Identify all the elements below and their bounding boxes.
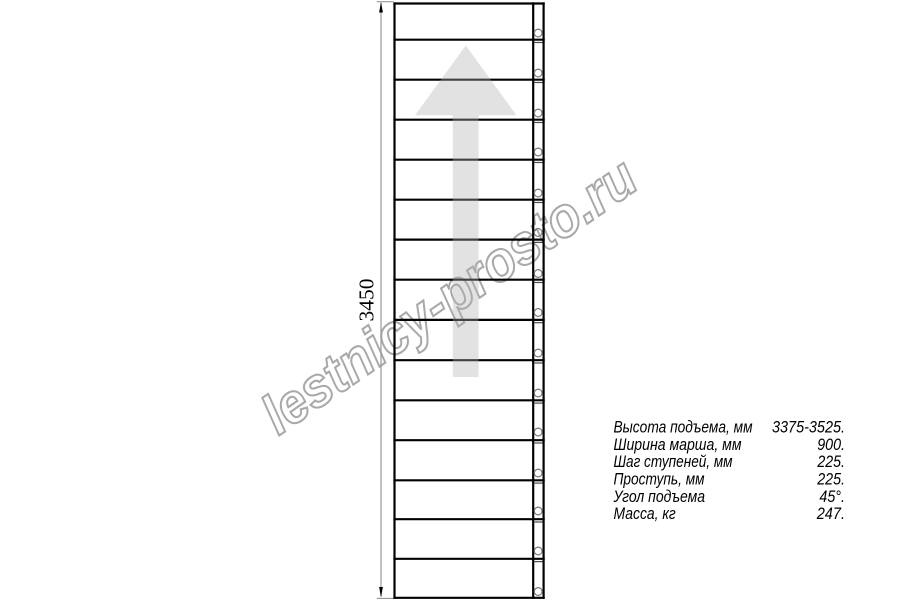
svg-text:Ширина марша, мм: Ширина марша, мм: [614, 435, 742, 454]
svg-text:Угол подъема: Угол подъема: [613, 487, 705, 506]
svg-text:3375-3525.: 3375-3525.: [772, 418, 845, 437]
svg-text:Проступь, мм: Проступь, мм: [614, 470, 705, 489]
svg-text:45°.: 45°.: [819, 487, 845, 506]
svg-text:900.: 900.: [817, 435, 845, 454]
svg-text:225.: 225.: [817, 452, 845, 471]
svg-text:225.: 225.: [816, 470, 845, 489]
svg-text:Высота подъема, мм: Высота подъема, мм: [614, 418, 753, 437]
svg-text:3450: 3450: [355, 279, 379, 322]
svg-text:247.: 247.: [816, 504, 845, 523]
svg-text:Масса, кг: Масса, кг: [614, 504, 676, 523]
svg-text:Шаг ступеней, мм: Шаг ступеней, мм: [614, 452, 733, 471]
